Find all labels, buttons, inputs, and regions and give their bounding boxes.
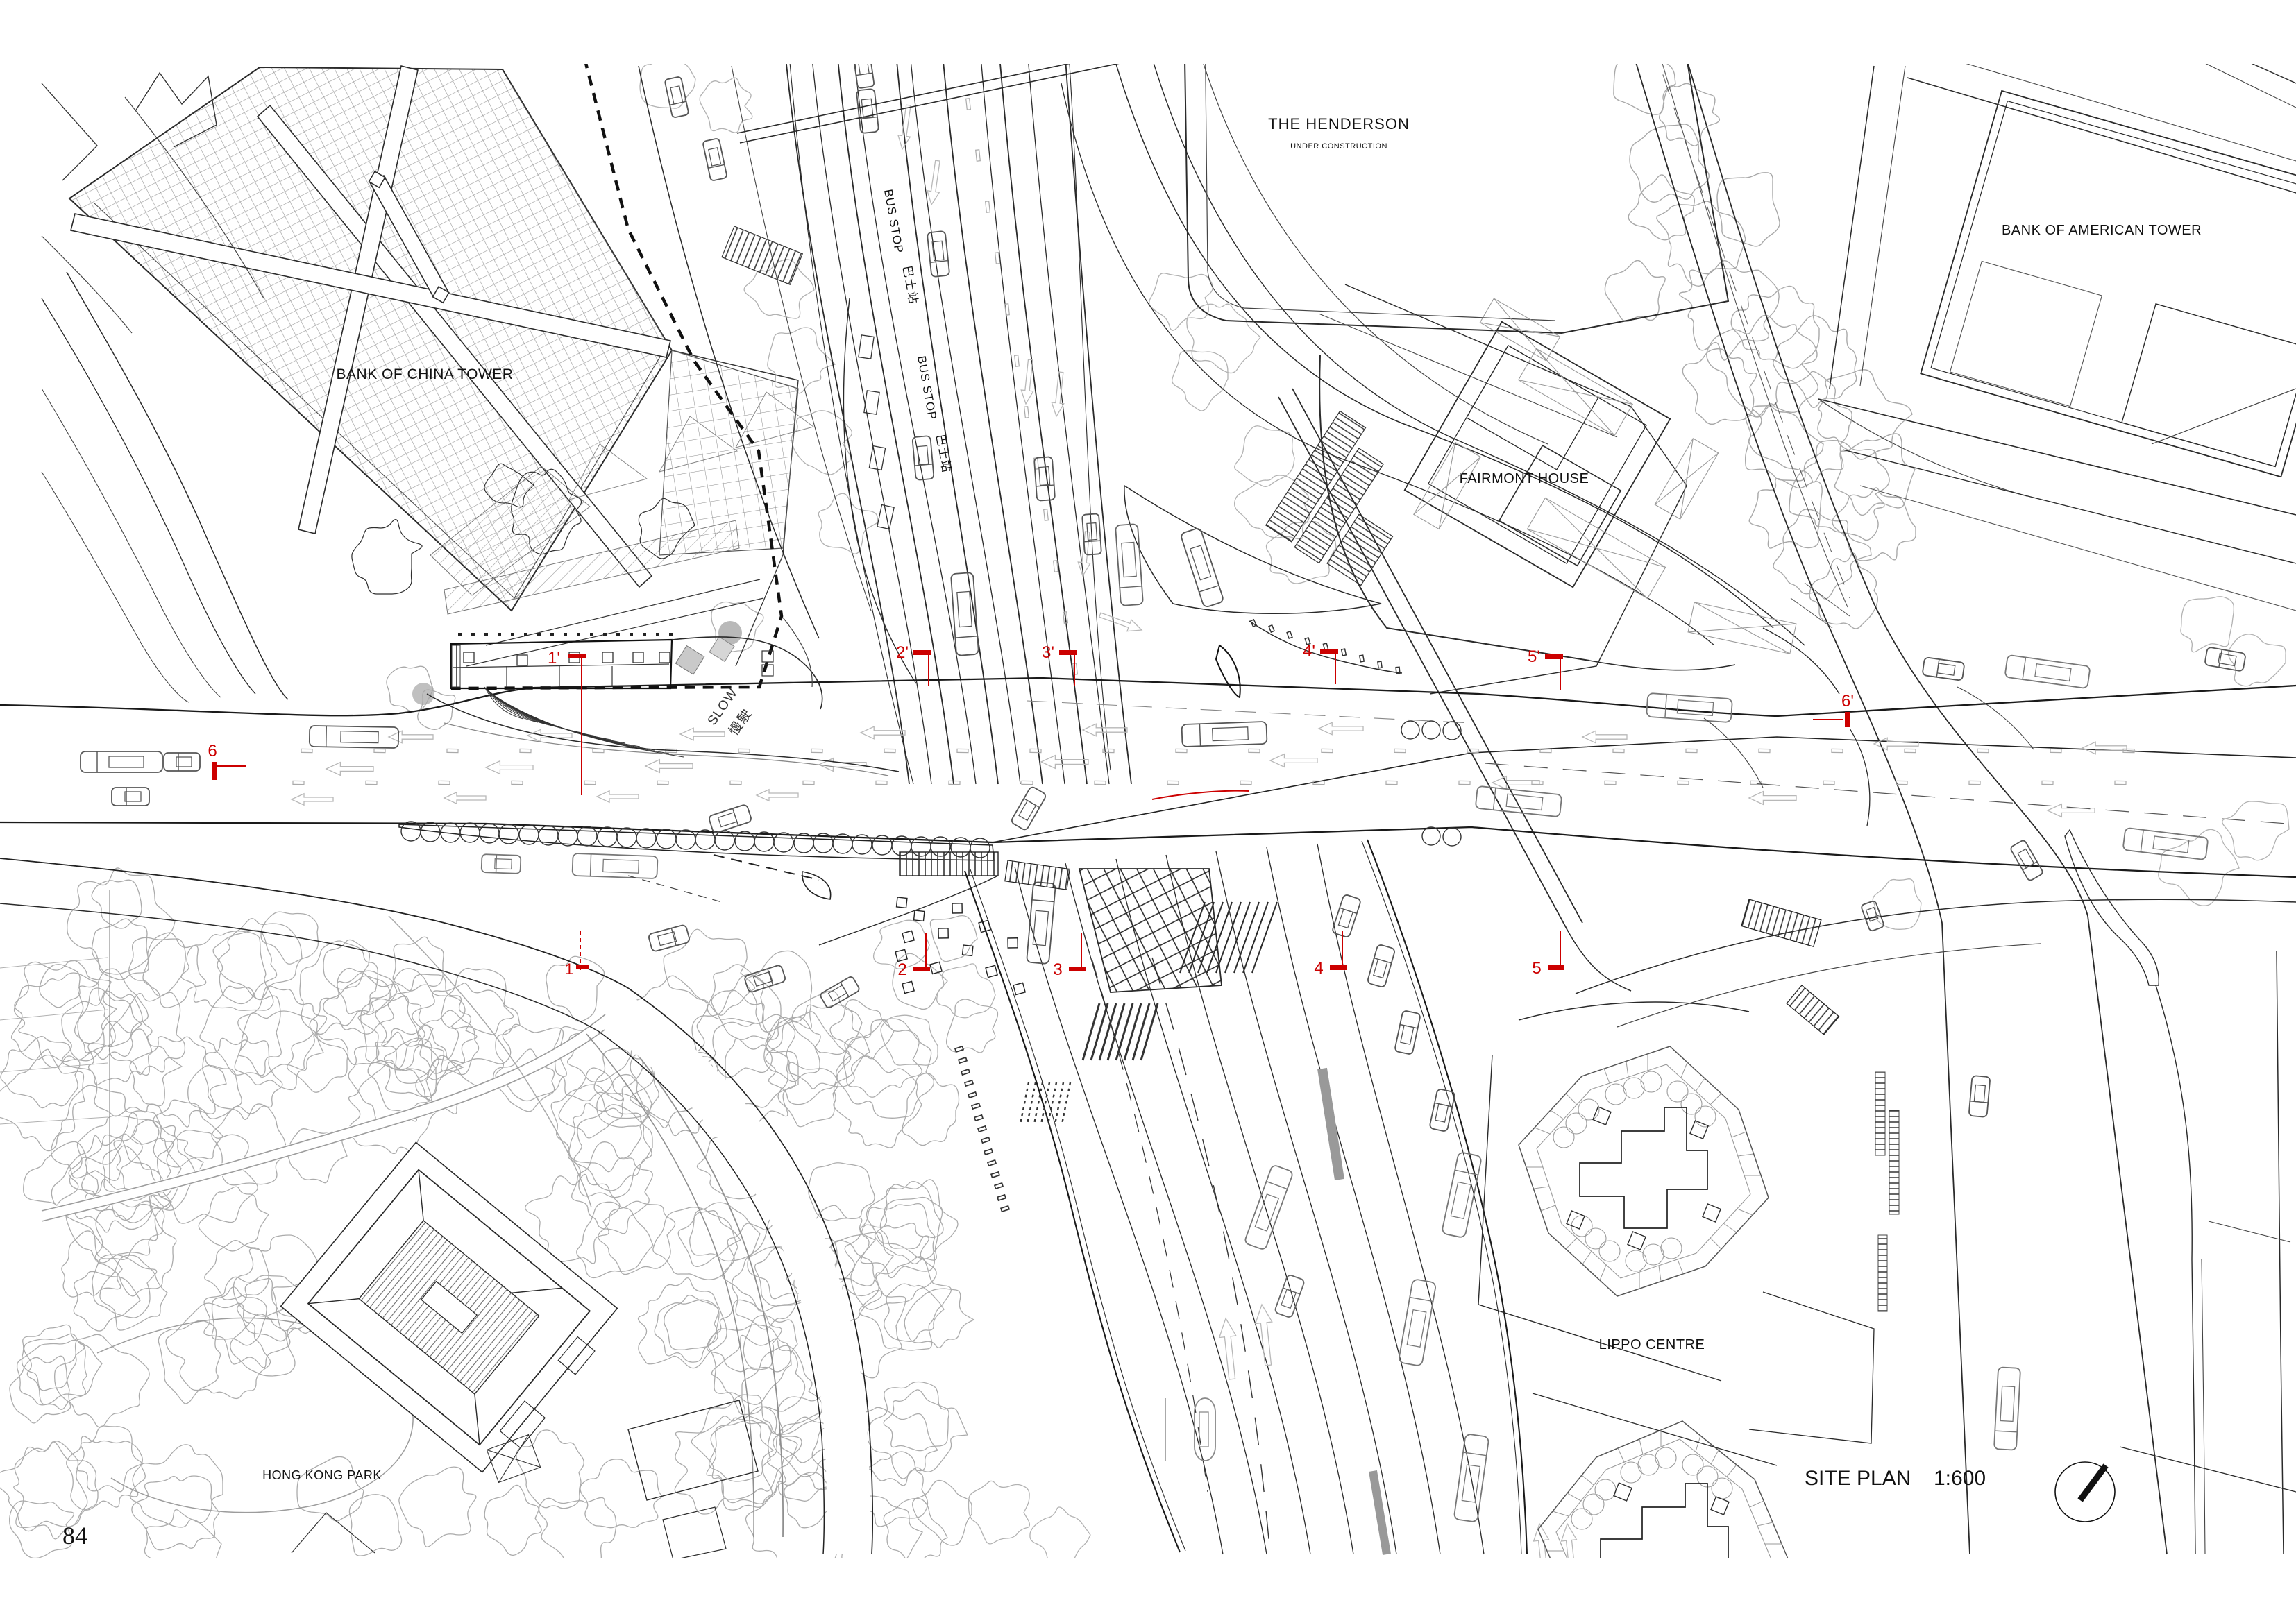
svg-text:5: 5 xyxy=(1532,959,1541,978)
svg-text:SITE PLAN: SITE PLAN xyxy=(1805,1467,1911,1490)
svg-text:2: 2 xyxy=(897,960,906,979)
svg-text:1': 1' xyxy=(548,649,560,668)
svg-text:HONG KONG PARK: HONG KONG PARK xyxy=(262,1468,382,1482)
svg-text:UNDER CONSTRUCTION: UNDER CONSTRUCTION xyxy=(1290,142,1387,151)
svg-text:6': 6' xyxy=(1841,692,1854,711)
svg-text:4': 4' xyxy=(1303,642,1315,661)
svg-text:3': 3' xyxy=(1042,643,1054,662)
svg-text:LIPPO CENTRE: LIPPO CENTRE xyxy=(1599,1337,1705,1352)
svg-text:BANK OF CHINA TOWER: BANK OF CHINA TOWER xyxy=(337,366,514,382)
svg-text:6: 6 xyxy=(208,742,217,760)
svg-text:1: 1 xyxy=(565,960,573,978)
svg-text:2': 2' xyxy=(896,643,909,662)
svg-text:84: 84 xyxy=(62,1522,87,1549)
svg-text:BANK OF AMERICAN TOWER: BANK OF AMERICAN TOWER xyxy=(2002,223,2202,238)
svg-text:3: 3 xyxy=(1053,960,1062,979)
svg-text:5': 5' xyxy=(1528,647,1540,666)
svg-text:FAIRMONT HOUSE: FAIRMONT HOUSE xyxy=(1460,471,1589,486)
svg-text:1:600: 1:600 xyxy=(1934,1467,1986,1490)
svg-text:THE HENDERSON: THE HENDERSON xyxy=(1268,115,1410,133)
svg-text:4: 4 xyxy=(1314,959,1323,978)
